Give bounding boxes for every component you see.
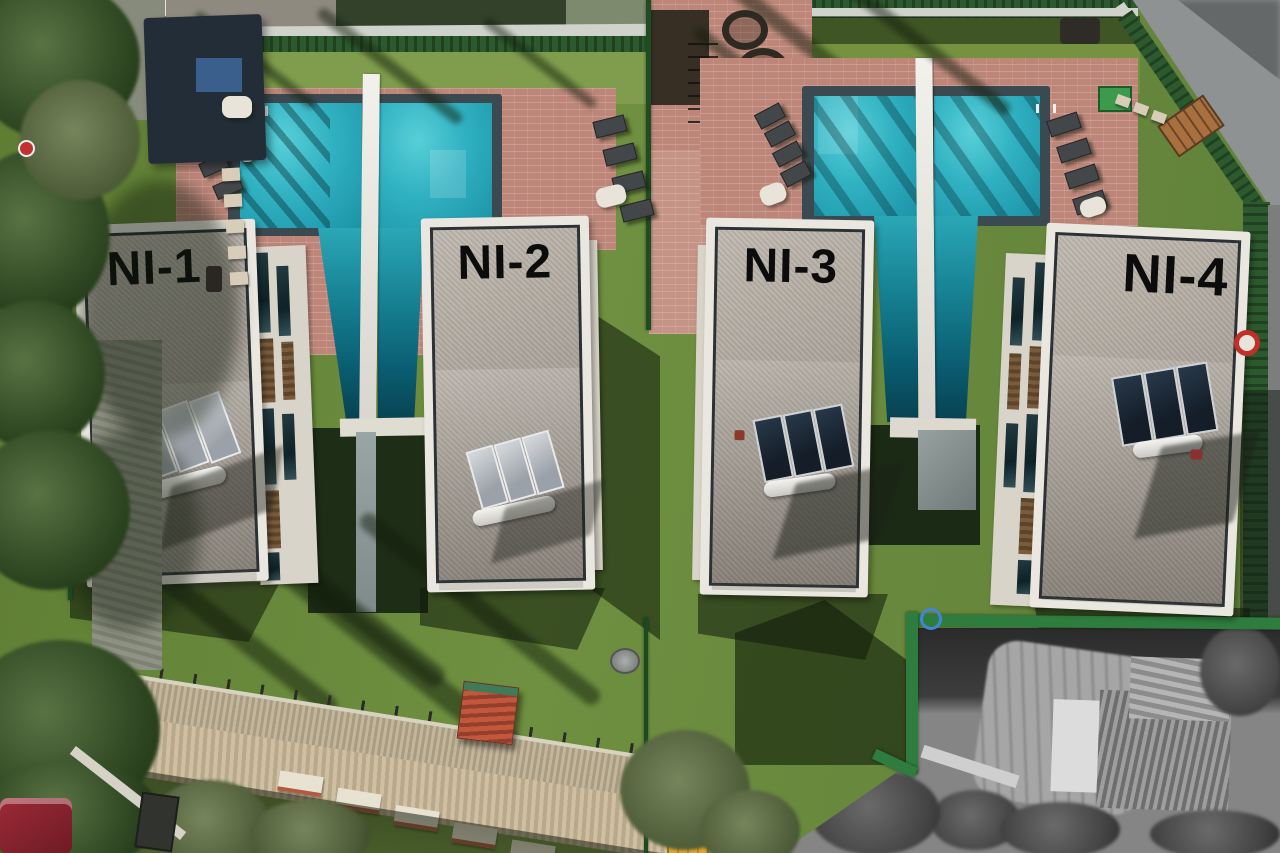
left-pool-divider-wall [359, 74, 380, 426]
garden-table [222, 96, 252, 118]
villa-2-roof: NI-2 [430, 225, 586, 584]
villa-4-shadow-east [1240, 390, 1280, 630]
barbecue [1060, 18, 1100, 44]
pump-house-ridge [464, 682, 519, 697]
stepping-stone [230, 272, 249, 286]
villa-1-window [282, 414, 297, 480]
right-pool-divider-wall [915, 58, 935, 430]
villa-4-stone-cladding [1007, 353, 1022, 409]
roof-vent [1190, 449, 1202, 460]
right-pool-lane-west [874, 216, 918, 422]
stepping-stone [228, 246, 247, 260]
gray-shrub [1000, 802, 1120, 853]
terrace-fence [646, 0, 651, 330]
boundary-fence-vertical [906, 612, 918, 774]
rattan-ring-chair [722, 10, 768, 50]
villa-3-roof: NI-3 [709, 227, 865, 589]
villa-2: NI-2 [421, 216, 596, 593]
villa-2-label: NI-2 [457, 238, 553, 288]
villa-3-shadow-east [735, 600, 915, 765]
villa-1-window [276, 266, 291, 336]
roof-vent [734, 430, 744, 440]
dark-trailer [134, 792, 179, 853]
villa-3-label: NI-3 [743, 242, 839, 292]
villa-4-roof: NI-4 [1039, 232, 1241, 607]
left-pool-steps [430, 150, 466, 198]
villa-3: NI-3 [700, 218, 875, 598]
round-sign [18, 140, 35, 157]
left-pool-lane-east [378, 228, 424, 428]
right-concrete-pad [918, 430, 976, 510]
stepping-stone [222, 168, 241, 182]
gray-shrub [1150, 810, 1280, 853]
boundary-fence-horizontal [912, 614, 1280, 629]
villa-4-window [1003, 423, 1018, 487]
blue-tarp [196, 58, 242, 92]
villa-1-stone-cladding [281, 342, 295, 400]
villa-4-window [1010, 277, 1025, 345]
garden-hose-coil [920, 608, 942, 630]
villa-4-label: NI-4 [1121, 246, 1229, 305]
red-vehicle-awning [0, 798, 72, 853]
stepping-stone [224, 194, 243, 208]
villa-4: NI-4 [1029, 223, 1250, 617]
garden-well-cover [610, 648, 640, 674]
left-lane-end-pad [340, 417, 428, 437]
gray-olive-tree [810, 770, 940, 853]
grill [206, 266, 222, 292]
gray-tree [1200, 626, 1280, 716]
lifebuoy [1234, 330, 1260, 356]
right-pool-lane-east [934, 216, 978, 426]
aerial-photo-stage: NI-1 NI-2 NI-3 [0, 0, 1280, 853]
stepping-stone [226, 220, 245, 234]
right-pool-ladder [1036, 104, 1056, 113]
pump-house-tiled-roof [457, 681, 520, 745]
olive-tree [20, 80, 140, 200]
